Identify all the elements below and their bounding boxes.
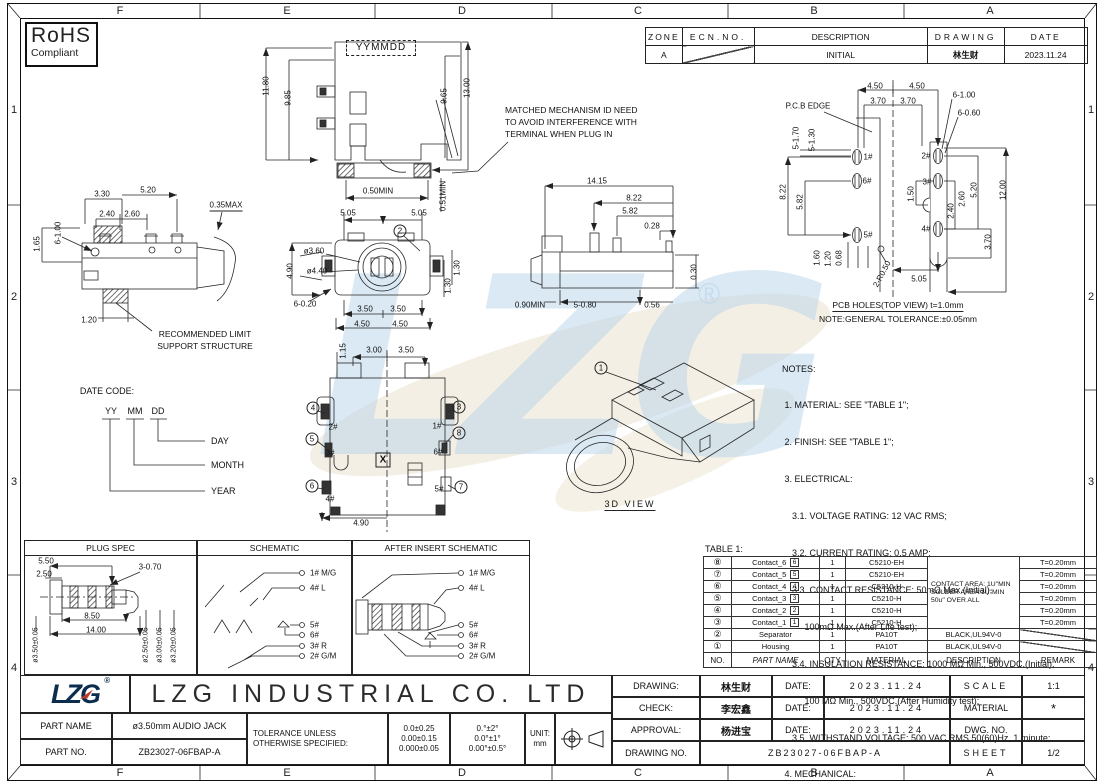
bom-remark: T=0.20mm [1020, 569, 1097, 581]
date-label-cell: DATE: [772, 719, 824, 741]
bom-material: PA10T [846, 641, 928, 653]
zone-label: C [634, 5, 642, 17]
drawing-name-cell: 林生财 [700, 675, 772, 697]
dim-label: ø4.40 [307, 267, 327, 276]
pin-label: 3# [326, 449, 335, 458]
balloon-callout-7: 7 [455, 481, 468, 494]
dim-label: 3.70 [870, 97, 886, 106]
zone-label: F [117, 767, 124, 779]
company-name: LZG INDUSTRIAL CO. LTD [152, 680, 591, 709]
table-row: ⑤ Contact_33 1 C5210-H T=0.20mm [704, 593, 1097, 605]
bom-remark-slash [1020, 641, 1097, 653]
bom-qty: 1 [820, 641, 846, 653]
dwg-no-value-cell [1022, 719, 1085, 741]
material-label-cell: MATERIAL [950, 697, 1022, 719]
part-no-value-cell: ZB23027-06FBAP-A [112, 739, 247, 765]
date-code-mm: MM [128, 406, 143, 416]
zone-label: 4 [11, 662, 17, 674]
dim-label: 6-1.00 [953, 91, 976, 100]
bom-qty: 1 [820, 557, 846, 569]
dim-label: 2.40 [99, 210, 115, 219]
pin-label: 5# [864, 231, 873, 240]
dim-label: 3.70 [984, 234, 993, 250]
rev-col-date: DATE [1004, 28, 1087, 46]
dim-label: 3.30 [94, 190, 110, 199]
angle-tolerance-value: 0.0°±1° [474, 734, 500, 744]
dim-label: 5.05 [911, 275, 927, 284]
bom-part-name: Contact_11 [732, 617, 820, 629]
dim-label: 5-1.30 [808, 129, 817, 152]
pin-label: 1# [864, 153, 873, 162]
bom-part-name: Contact_33 [732, 593, 820, 605]
bom-material: C5210-H [846, 617, 928, 629]
desc-line: SOLDER AREA:1U"MIN [931, 589, 1018, 597]
bom-contact-description: CONTACT AREA: 1U"MIN SOLDER AREA:1U"MIN … [928, 557, 1020, 629]
date-code-yy: YY [105, 406, 117, 416]
date-code-day: DAY [211, 436, 229, 446]
pin-label: 5# [435, 485, 444, 494]
tolerance-value: 0.00±0.15 [401, 734, 437, 744]
dim-label: 1.30 [444, 278, 453, 294]
dim-label: 0.68 [835, 250, 844, 266]
bom-footer-qty: QTY [820, 653, 846, 668]
part-tag: 3 [790, 594, 799, 603]
pin-label: 3# R [310, 642, 327, 651]
zone-label: D [458, 767, 466, 779]
registered-icon: ® [104, 677, 108, 685]
angle-tolerance-cell: 0.°±2° 0.0°±1° 0.00°±0.5° [450, 713, 525, 765]
balloon-callout-5: 5 [306, 433, 319, 446]
logo-text: LZG [51, 679, 99, 709]
bom-footer-remark: REMARK [1020, 653, 1097, 668]
dim-label: 8.50 [84, 612, 100, 621]
bom-qty: 1 [820, 569, 846, 581]
part-name-text: Contact_6 [752, 558, 786, 567]
dim-label: 1.20 [81, 316, 97, 325]
table-row: ④ Contact_22 1 C5210-H T=0.20mm [704, 605, 1097, 617]
unit-cell: UNIT: mm [525, 713, 555, 765]
check-label-cell: CHECK: [612, 697, 700, 719]
revision-row: A INITIAL 林生财 2023.11.24 [646, 46, 1088, 64]
scale-value-cell: 1:1 [1022, 675, 1085, 697]
note-matched-mechanism: TERMINAL WHEN PLUG IN [505, 129, 612, 139]
material-value-cell: * [1022, 697, 1085, 719]
unit-label: UNIT: [530, 729, 550, 739]
angle-tolerance-value: 0.00°±0.5° [469, 744, 506, 754]
bom-no: ① [704, 641, 732, 653]
dim-label: ø3.60 [304, 247, 324, 256]
desc-line: CONTACT AREA: 1U"MIN [931, 581, 1018, 589]
pin-label: 1# M/G [310, 569, 336, 578]
pin-label: 6# [310, 631, 319, 640]
bom-part-name: Contact_22 [732, 605, 820, 617]
date-code-title: DATE CODE: [80, 386, 134, 396]
pin-label: 3# [923, 178, 932, 187]
part-name-text: Contact_3 [752, 594, 786, 603]
company-logo-cell: LZG® [20, 675, 130, 713]
desc-line: 50u" OVER ALL [931, 597, 1018, 605]
scale-label-cell: SCALE [950, 675, 1022, 697]
dim-label: 2.40 [947, 203, 956, 219]
dim-label: 2.60 [958, 191, 967, 207]
dim-label: 5.82 [622, 207, 638, 216]
dim-label: 3.00 [366, 346, 382, 355]
approval-date-cell: 2023.11.24 [824, 719, 950, 741]
dim-label: 3.70 [900, 97, 916, 106]
dim-label: 12.00 [999, 180, 1008, 200]
pin-label: 4# [326, 495, 335, 504]
dim-label: 6-0.60 [958, 109, 981, 118]
rev-zone: A [646, 46, 683, 64]
dim-label: 1.60 [813, 250, 822, 266]
table1-title: TABLE 1: [705, 544, 743, 554]
pin-label: 6# [469, 631, 478, 640]
dim-label: 4.90 [286, 263, 295, 279]
drawing-date-cell: 2023.11.24 [824, 675, 950, 697]
bom-material: C5210-EH [846, 569, 928, 581]
zone-label: 3 [1088, 476, 1094, 488]
dim-label: 3.50 [357, 305, 373, 314]
dwg-no-label-cell: DWG. NO. [950, 719, 1022, 741]
bom-remark: T=0.20mm [1020, 605, 1097, 617]
part-name-label-cell: PART NAME [20, 713, 112, 739]
approval-name-cell: 杨进宝 [700, 719, 772, 741]
bom-qty: 1 [820, 617, 846, 629]
bom-material: C5210-H [846, 581, 928, 593]
table-row: ② Separator 1 PA10T BLACK,UL94V-0 [704, 629, 1097, 641]
pin-label: 2# [922, 152, 931, 161]
zone-label: C [634, 767, 642, 779]
note-line: 3. ELECTRICAL: [782, 473, 1054, 485]
dim-label: 3.50 [398, 346, 414, 355]
note-line: 4. MECHANICAL: [782, 768, 1054, 780]
tolerance-values-cell: 0.0±0.25 0.00±0.15 0.000±0.05 [388, 713, 450, 765]
sheet-value-cell: 1/2 [1022, 741, 1085, 765]
date-code-month: MONTH [211, 460, 244, 470]
zone-label: E [283, 5, 290, 17]
revision-header-row: ZONE ECN.NO. DESCRIPTION DRAWING DATE [646, 28, 1088, 46]
bom-remark: T=0.20mm [1020, 593, 1097, 605]
dim-label: 5.82 [796, 194, 805, 210]
bom-no: ④ [704, 605, 732, 617]
drawing-label-cell: DRAWING: [612, 675, 700, 697]
pin-label: 1# [433, 422, 442, 431]
dim-label: 1.30 [453, 260, 462, 276]
zone-label: 1 [1088, 104, 1094, 116]
rev-description: INITIAL [754, 46, 927, 64]
table-row: ⑦ Contact_55 1 C5210-EH T=0.20mm [704, 569, 1097, 581]
angle-tolerance-value: 0.°±2° [477, 724, 499, 734]
note-matched-mechanism: TO AVOID INTERFERENCE WITH [505, 117, 637, 127]
dim-label: 1.15 [339, 343, 348, 359]
part-name-text: Contact_4 [752, 582, 786, 591]
date-code-year: YEAR [211, 486, 236, 496]
pin-label: 4# L [310, 584, 326, 593]
bom-description: BLACK,UL94V-0 [928, 641, 1020, 653]
table-row: ⑥ Contact_44 1 C5210-H T=0.20mm [704, 581, 1097, 593]
pin-label: 4# [922, 225, 931, 234]
part-tag: 6 [790, 558, 799, 567]
bom-part-name: Contact_66 [732, 557, 820, 569]
bom-qty: 1 [820, 605, 846, 617]
bom-no: ⑦ [704, 569, 732, 581]
company-logo: LZG® [51, 681, 99, 708]
note-matched-mechanism: MATCHED MECHANISM ID NEED [505, 105, 638, 115]
dim-label: 4.50 [354, 320, 370, 329]
bom-no: ② [704, 629, 732, 641]
table-footer-row: NO. PART NAME QTY MATERIAL DESCRIPTION R… [704, 653, 1097, 668]
bom-material: PA10T [846, 629, 928, 641]
pin-label: 6# [863, 177, 872, 186]
zone-label: 1 [11, 104, 17, 116]
rev-drawing-name: 林生财 [927, 46, 1004, 64]
dim-label: 3-0.70 [139, 563, 162, 572]
balloon-callout-4: 4 [307, 402, 320, 415]
pin-label: 5# [469, 621, 478, 630]
date-code-stamp: YYMMDD [346, 40, 416, 56]
dim-label: 0.51MIN [439, 181, 448, 211]
dim-label: 0.90MIN [515, 301, 545, 310]
part-tag: 1 [790, 618, 799, 627]
dim-label: 5.05 [411, 209, 427, 218]
tolerance-label-line: OTHERWISE SPECIFIED: [253, 739, 348, 749]
dim-label: 0.35MAX [210, 201, 243, 212]
dim-label: 5.05 [340, 209, 356, 218]
balloon-callout-8: 8 [453, 427, 466, 440]
dim-label: 9.65 [440, 88, 449, 104]
zone-label: 2 [1088, 291, 1094, 303]
part-name-text: Contact_5 [752, 570, 786, 579]
date-code-dd: DD [152, 406, 165, 416]
dim-label: 6-1.00 [54, 222, 63, 245]
rev-col-drawing: DRAWING [927, 28, 1004, 46]
bom-no: ⑤ [704, 593, 732, 605]
dim-label: ø2.50±0.05 [143, 627, 150, 662]
approval-label-cell: APPROVAL: [612, 719, 700, 741]
part-tag: 2 [790, 606, 799, 615]
projection-angle-icon [561, 728, 607, 750]
part-name-value-cell: ø3.50mm AUDIO JACK [112, 713, 247, 739]
dim-label: ø3.00±0.05 [157, 627, 164, 662]
bom-qty: 1 [820, 593, 846, 605]
bom-footer-no: NO. [704, 653, 732, 668]
bom-footer-material: MATERIAL [846, 653, 928, 668]
dim-label: 8.22 [779, 184, 788, 200]
dim-label: 6-0.20 [294, 300, 317, 309]
revision-table: ZONE ECN.NO. DESCRIPTION DRAWING DATE A … [645, 27, 1088, 64]
after-insert-panel: AFTER INSERT SCHEMATIC [352, 540, 530, 675]
bom-no: ⑥ [704, 581, 732, 593]
balloon-callout-6: 6 [306, 480, 319, 493]
pcb-view-note: NOTE:GENERAL TOLERANCE:±0.05mm [819, 314, 977, 324]
sheet-label-cell: SHEET [950, 741, 1022, 765]
dim-label: 0.28 [644, 222, 660, 231]
bom-remark-slash [1020, 629, 1097, 641]
dim-label: 9.85 [284, 90, 293, 106]
dim-label: 1.65 [33, 236, 42, 252]
zone-label: E [283, 767, 290, 779]
orientation-mark: X [376, 453, 391, 468]
bom-remark: T=0.20mm [1020, 581, 1097, 593]
zone-label: 3 [11, 476, 17, 488]
part-name-text: Contact_2 [752, 606, 786, 615]
note-line: 3.1. VOLTAGE RATING: 12 VAC RMS; [782, 510, 1054, 522]
date-label-cell: DATE: [772, 675, 824, 697]
dim-label: 14.00 [86, 626, 106, 635]
bom-no: ③ [704, 617, 732, 629]
tolerance-label-cell: TOLERANCE UNLESS OTHERWISE SPECIFIED: [247, 713, 388, 765]
part-no-label-cell: PART NO. [20, 739, 112, 765]
dim-label: 4.50 [867, 82, 883, 91]
dim-label: ø3.20±0.05 [171, 627, 178, 662]
dim-label: 5.20 [140, 186, 156, 195]
dim-label: 0.56 [644, 301, 660, 310]
balloon-callout-2: 2 [394, 225, 407, 238]
bom-table: ⑧ Contact_66 1 C5210-EH CONTACT AREA: 1U… [703, 556, 1097, 668]
table-row: ① Housing 1 PA10T BLACK,UL94V-0 [704, 641, 1097, 653]
dim-label: 1.50 [907, 186, 916, 202]
bom-material: C5210-H [846, 593, 928, 605]
zone-label: B [810, 5, 817, 17]
schematic-title: SCHEMATIC [198, 541, 351, 556]
tolerance-value: 0.000±0.05 [399, 744, 439, 754]
dim-label: ø3.50±0.05 [33, 627, 40, 662]
note-line: 2. FINISH: SEE "TABLE 1"; [782, 436, 1054, 448]
drawing-no-label-cell: DRAWING NO. [612, 741, 700, 765]
date-label-cell: DATE: [772, 697, 824, 719]
rev-ecn-empty [682, 46, 754, 64]
dim-label: 5-1.70 [792, 127, 801, 150]
part-name-text: Contact_1 [752, 618, 786, 627]
note-recommended-support: RECOMMENDED LIMIT [159, 329, 252, 339]
dim-label: 5.20 [970, 182, 979, 198]
dim-label: 2.60 [124, 210, 140, 219]
balloon-callout-1: 1 [595, 362, 608, 375]
dim-label: 11.80 [262, 76, 271, 95]
check-name-cell: 李宏鑫 [700, 697, 772, 719]
view-3d-label: 3D VIEW [604, 499, 655, 511]
balloon-callout-3: 3 [453, 401, 466, 414]
bom-part-name: Housing [732, 641, 820, 653]
pcb-view-title: PCB HOLES(TOP VIEW) t=1.0mm [832, 300, 963, 312]
bom-qty: 1 [820, 629, 846, 641]
drawing-no-value-cell: ZB23027-06FBAP-A [700, 741, 950, 765]
pin-label: 1# M/G [469, 569, 495, 578]
bom-qty: 1 [820, 581, 846, 593]
bom-remark: T=0.20mm [1020, 617, 1097, 629]
zone-label: F [117, 5, 124, 17]
bom-material: C5210-EH [846, 557, 928, 569]
dim-label: 13.00 [463, 78, 472, 98]
pin-label: 4# L [469, 584, 485, 593]
pin-label: 6# [434, 448, 443, 457]
unit-value: mm [533, 739, 546, 749]
dim-label: 5-0.80 [574, 301, 597, 310]
after-insert-title: AFTER INSERT SCHEMATIC [353, 541, 529, 556]
pcb-edge-label: P.C.B EDGE [786, 102, 831, 111]
dim-label: 5.50 [38, 557, 54, 566]
zone-label: A [986, 5, 993, 17]
bom-footer-description: DESCRIPTION [928, 653, 1020, 668]
dim-label: 3.50 [390, 305, 406, 314]
note-line: 1. MATERIAL: SEE "TABLE 1"; [782, 399, 1054, 411]
dim-label: 4.90 [353, 519, 369, 528]
pin-label: 3# R [469, 642, 486, 651]
bom-description: BLACK,UL94V-0 [928, 629, 1020, 641]
bom-part-name: Separator [732, 629, 820, 641]
dim-label: 4.50 [392, 320, 408, 329]
dim-label: 0.50MIN [363, 187, 393, 196]
note-line: NOTES: [782, 363, 1054, 375]
check-date-cell: 2023.11.24 [824, 697, 950, 719]
rev-date: 2023.11.24 [1004, 46, 1087, 64]
zone-label: 2 [11, 291, 17, 303]
rev-col-ecn: ECN.NO. [682, 28, 754, 46]
zone-label: D [458, 5, 466, 17]
rev-col-zone: ZONE [646, 28, 683, 46]
pin-label: 2# G/M [310, 652, 336, 661]
bom-part-name: Contact_55 [732, 569, 820, 581]
rohs-title: RoHS [31, 25, 92, 47]
bom-no: ⑧ [704, 557, 732, 569]
bom-material: C5210-H [846, 605, 928, 617]
rohs-badge: RoHS Compliant [25, 22, 98, 67]
dim-label: 8.22 [626, 194, 642, 203]
pin-label: 5# [310, 621, 319, 630]
dim-label: 0.30 [690, 264, 699, 280]
bom-footer-name: PART NAME [732, 653, 820, 668]
bom-part-name: Contact_44 [732, 581, 820, 593]
note-recommended-support: SUPPORT STRUCTURE [157, 341, 253, 351]
company-name-cell: LZG INDUSTRIAL CO. LTD [130, 675, 612, 713]
dim-label: 2.50 [36, 570, 52, 579]
tolerance-label-line: TOLERANCE UNLESS [253, 729, 336, 739]
dim-label: 1.20 [824, 251, 833, 267]
table-row: ③ Contact_11 1 C5210-H T=0.20mm [704, 617, 1097, 629]
dim-label: 4.50 [909, 82, 925, 91]
bom-remark: T=0.20mm [1020, 557, 1097, 569]
table-row: ⑧ Contact_66 1 C5210-EH CONTACT AREA: 1U… [704, 557, 1097, 569]
part-tag: 5 [790, 570, 799, 579]
projection-symbol-cell [555, 713, 612, 765]
rohs-subtitle: Compliant [31, 47, 92, 59]
part-tag: 4 [790, 582, 799, 591]
tolerance-value: 0.0±0.25 [403, 724, 434, 734]
pin-label: 2# [329, 423, 338, 432]
rev-col-description: DESCRIPTION [754, 28, 927, 46]
pin-label: 2# G/M [469, 652, 495, 661]
drawing-sheet: LZG ® [0, 0, 1104, 784]
dim-label: 14.15 [587, 177, 607, 186]
plug-spec-title: PLUG SPEC [25, 541, 196, 556]
